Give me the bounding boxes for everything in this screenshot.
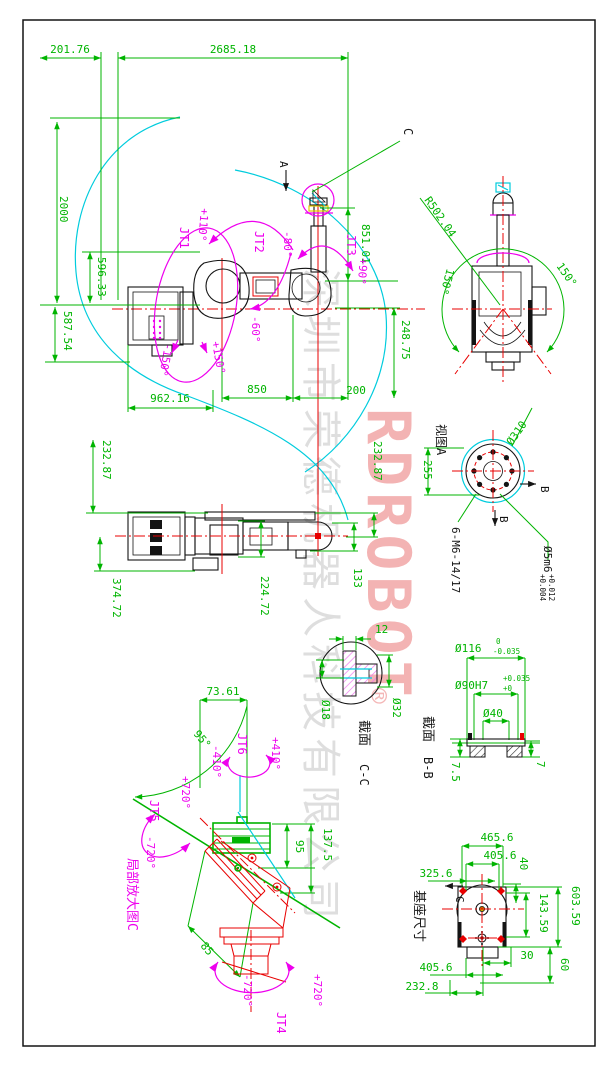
jt4-max-label: +720° <box>311 974 324 1007</box>
dim-587: 587.54 <box>61 311 74 351</box>
jt2-min-label: -60° <box>249 316 262 343</box>
jt4-label: JT4 <box>274 1012 288 1034</box>
jt3-min-label: -80° <box>281 231 294 258</box>
dim-224: 224.72 <box>258 576 271 616</box>
section-b-mark-right: B <box>538 486 551 493</box>
cad-drawing-page: 深圳市荣德机器人科技有限公司 RDROBOT ® ptim <box>0 0 607 1071</box>
dim-465: 465.6 <box>480 831 513 844</box>
jt6-label: JT6 <box>235 733 249 755</box>
dim-850: 850 <box>247 383 267 396</box>
jt5-label: JT5 <box>147 800 161 822</box>
dim-7-5: 7.5 <box>449 762 462 782</box>
jt5-max-label: +720° <box>179 776 192 809</box>
drawing-canvas: 深圳市荣德机器人科技有限公司 RDROBOT ® ptim <box>0 0 607 1071</box>
section-bb-name: B-B <box>421 757 435 779</box>
dim-200: 200 <box>346 384 366 397</box>
dia-116-tol-lower: -0.035 <box>493 647 520 656</box>
jt2-label: JT2 <box>252 231 266 253</box>
dia-90: Ø90H7 <box>455 679 488 692</box>
flange-dia-label: Ø310 <box>504 419 530 448</box>
dim-18: Ø18 <box>319 700 332 720</box>
section-b-mark-bottom: B <box>497 516 510 523</box>
detail-c-title: 局部放大图C <box>124 858 139 931</box>
dim-374: 374.72 <box>110 578 123 618</box>
dim-255: 255 <box>421 460 434 480</box>
base-view-title: 基座尺寸 <box>411 890 426 942</box>
jt4-min-label: -720° <box>241 974 254 1007</box>
view-a: 视图A Ø310 255 B B 6-M6-14/17 Ø5m6 +0.012 … <box>421 408 556 602</box>
pin-label: Ø5m6 <box>541 546 554 573</box>
dim-32: Ø32 <box>390 698 403 718</box>
jt1-label: JT1 <box>177 227 191 249</box>
joint-annotations-detail <box>142 755 289 993</box>
base-connector <box>149 316 164 339</box>
dia-40: Ø40 <box>483 707 503 720</box>
dim-603: 603.59 <box>569 886 582 926</box>
section-cc-name: C-C <box>357 764 371 786</box>
jt6-max-label: +410° <box>269 737 282 770</box>
dim-60: 60 <box>558 958 571 971</box>
dim-7: 7 <box>534 761 547 768</box>
dim-596: 596.33 <box>95 257 108 297</box>
dim-133: 133 <box>351 568 364 588</box>
dim-962: 962.16 <box>150 392 190 405</box>
view-a-direction-label: A <box>277 161 290 168</box>
view-a-title: 视图A <box>434 424 449 456</box>
dia-90-tol-lower: +0 <box>503 684 513 693</box>
dia-116: Ø116 <box>455 642 482 655</box>
dim-232: 232.8 <box>405 980 438 993</box>
dim-405-top: 405.6 <box>483 849 516 862</box>
bolt-pattern-label: 6-M6-14/17 <box>449 527 462 593</box>
pin-tol-upper: +0.012 <box>547 574 556 601</box>
watermark-company-text: 深圳市荣德机器人科技有限公司 <box>297 268 343 926</box>
dia-116-tol-upper: 0 <box>496 637 501 646</box>
section-c-mark: C <box>453 896 466 903</box>
pin-callout: Ø5m6 +0.012 +0.004 <box>538 546 556 602</box>
watermark-brand-text: RDROBOT <box>353 408 423 703</box>
section-bb: Ø116 0 -0.035 Ø90H7 +0.035 +0 Ø40 7.5 7 <box>449 637 547 782</box>
jt1-min-label: -150° <box>156 342 175 377</box>
section-bb-label: 截面 <box>420 716 435 742</box>
pin-tol-lower: +0.004 <box>538 574 547 602</box>
watermark-registered-mark: ® <box>363 688 393 704</box>
top-view-centerlines <box>452 176 552 384</box>
jt3-label: JT3 <box>344 234 358 256</box>
jt6-min-label: -410° <box>210 745 223 778</box>
top-view-outline <box>472 183 546 370</box>
base-view: C 基座尺寸 465.6 405.6 325.6 40 143.59 603.5… <box>405 831 582 996</box>
dim-73: 73.61 <box>206 685 239 698</box>
jt5-min-label: -720° <box>144 836 157 869</box>
detail-c-leader <box>312 141 400 192</box>
dim-405-bottom: 405.6 <box>419 961 452 974</box>
dim-40: 40 <box>517 857 530 870</box>
jt2-max-label: +110° <box>195 208 211 242</box>
watermark: 深圳市荣德机器人科技有限公司 RDROBOT ® <box>297 268 423 926</box>
jt3-max-label: +90° <box>355 258 370 286</box>
dim-232-left: 232.87 <box>100 440 113 480</box>
dim-2000: 2000 <box>57 196 70 223</box>
dim-137: 137.5 <box>321 828 334 861</box>
dim-248: 248.75 <box>399 320 412 360</box>
dia-90-tol-upper: +0.035 <box>503 674 530 683</box>
dim-12: 12 <box>375 623 388 636</box>
dim-232-right: 232.87 <box>371 441 384 481</box>
dim-201: 201.76 <box>50 43 90 56</box>
dim-30: 30 <box>520 949 533 962</box>
dim-95: 95 <box>293 840 306 853</box>
dim-2685: 2685.18 <box>210 43 256 56</box>
top-view: R502.04 150° 150° <box>420 176 579 384</box>
dim-85: 85 <box>198 940 216 959</box>
section-cc-label: 截面 <box>356 720 371 746</box>
sweep-right-label: 150° <box>554 260 580 289</box>
sweep-left-label: 150° <box>437 267 456 296</box>
dim-325: 325.6 <box>419 867 452 880</box>
bolts-leader <box>458 494 476 522</box>
pin-leader <box>500 494 548 560</box>
dim-143: 143.59 <box>537 893 550 933</box>
radius-label: R502.04 <box>422 194 459 240</box>
detail-c-ref-label: C <box>401 128 415 135</box>
